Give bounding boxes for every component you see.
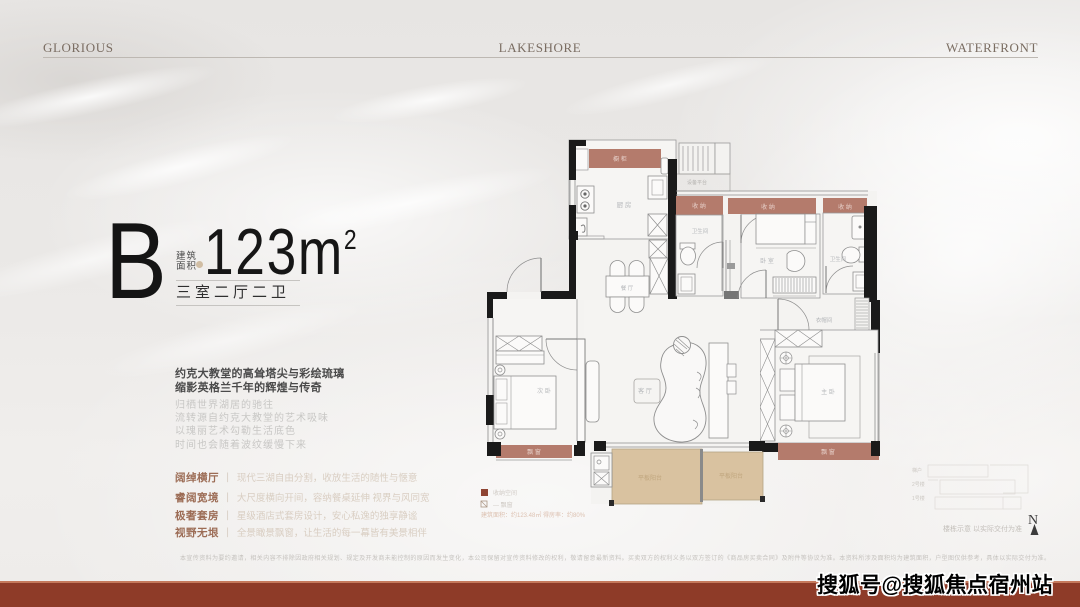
svg-text:衣帽间: 衣帽间 bbox=[816, 316, 833, 324]
svg-text:设备平台: 设备平台 bbox=[687, 179, 707, 186]
svg-text:收纳空间: 收纳空间 bbox=[493, 489, 517, 497]
svg-text:收 纳: 收 纳 bbox=[692, 202, 706, 210]
svg-text:— 飘窗: — 飘窗 bbox=[493, 501, 513, 509]
svg-text:客 厅: 客 厅 bbox=[638, 387, 652, 395]
svg-text:收 纳: 收 纳 bbox=[838, 203, 852, 211]
svg-text:梯户: 梯户 bbox=[912, 467, 922, 474]
svg-text:橱 柜: 橱 柜 bbox=[613, 155, 627, 163]
svg-text:楼栋示意 以实际交付为准: 楼栋示意 以实际交付为准 bbox=[943, 524, 1022, 533]
svg-text:厨 房: 厨 房 bbox=[617, 200, 632, 209]
svg-text:卫生间: 卫生间 bbox=[692, 227, 709, 235]
svg-text:N: N bbox=[1028, 513, 1038, 528]
svg-text:主 卧: 主 卧 bbox=[821, 388, 835, 396]
svg-text:建筑面积：约123.48㎡ 得房率：约80%: 建筑面积：约123.48㎡ 得房率：约80% bbox=[481, 511, 586, 519]
svg-text:飘 窗: 飘 窗 bbox=[821, 448, 835, 456]
svg-text:1号楼: 1号楼 bbox=[912, 495, 925, 502]
svg-text:飘 窗: 飘 窗 bbox=[527, 448, 541, 456]
svg-text:2号楼: 2号楼 bbox=[912, 481, 925, 488]
svg-text:收 纳: 收 纳 bbox=[761, 203, 775, 211]
svg-text:卫生间: 卫生间 bbox=[830, 255, 847, 263]
svg-text:次 卧: 次 卧 bbox=[537, 387, 551, 395]
svg-text:平板阳台: 平板阳台 bbox=[638, 474, 662, 482]
svg-text:餐 厅: 餐 厅 bbox=[621, 284, 634, 292]
svg-text:平板阳台: 平板阳台 bbox=[719, 472, 743, 480]
svg-text:卧 室: 卧 室 bbox=[760, 257, 774, 265]
